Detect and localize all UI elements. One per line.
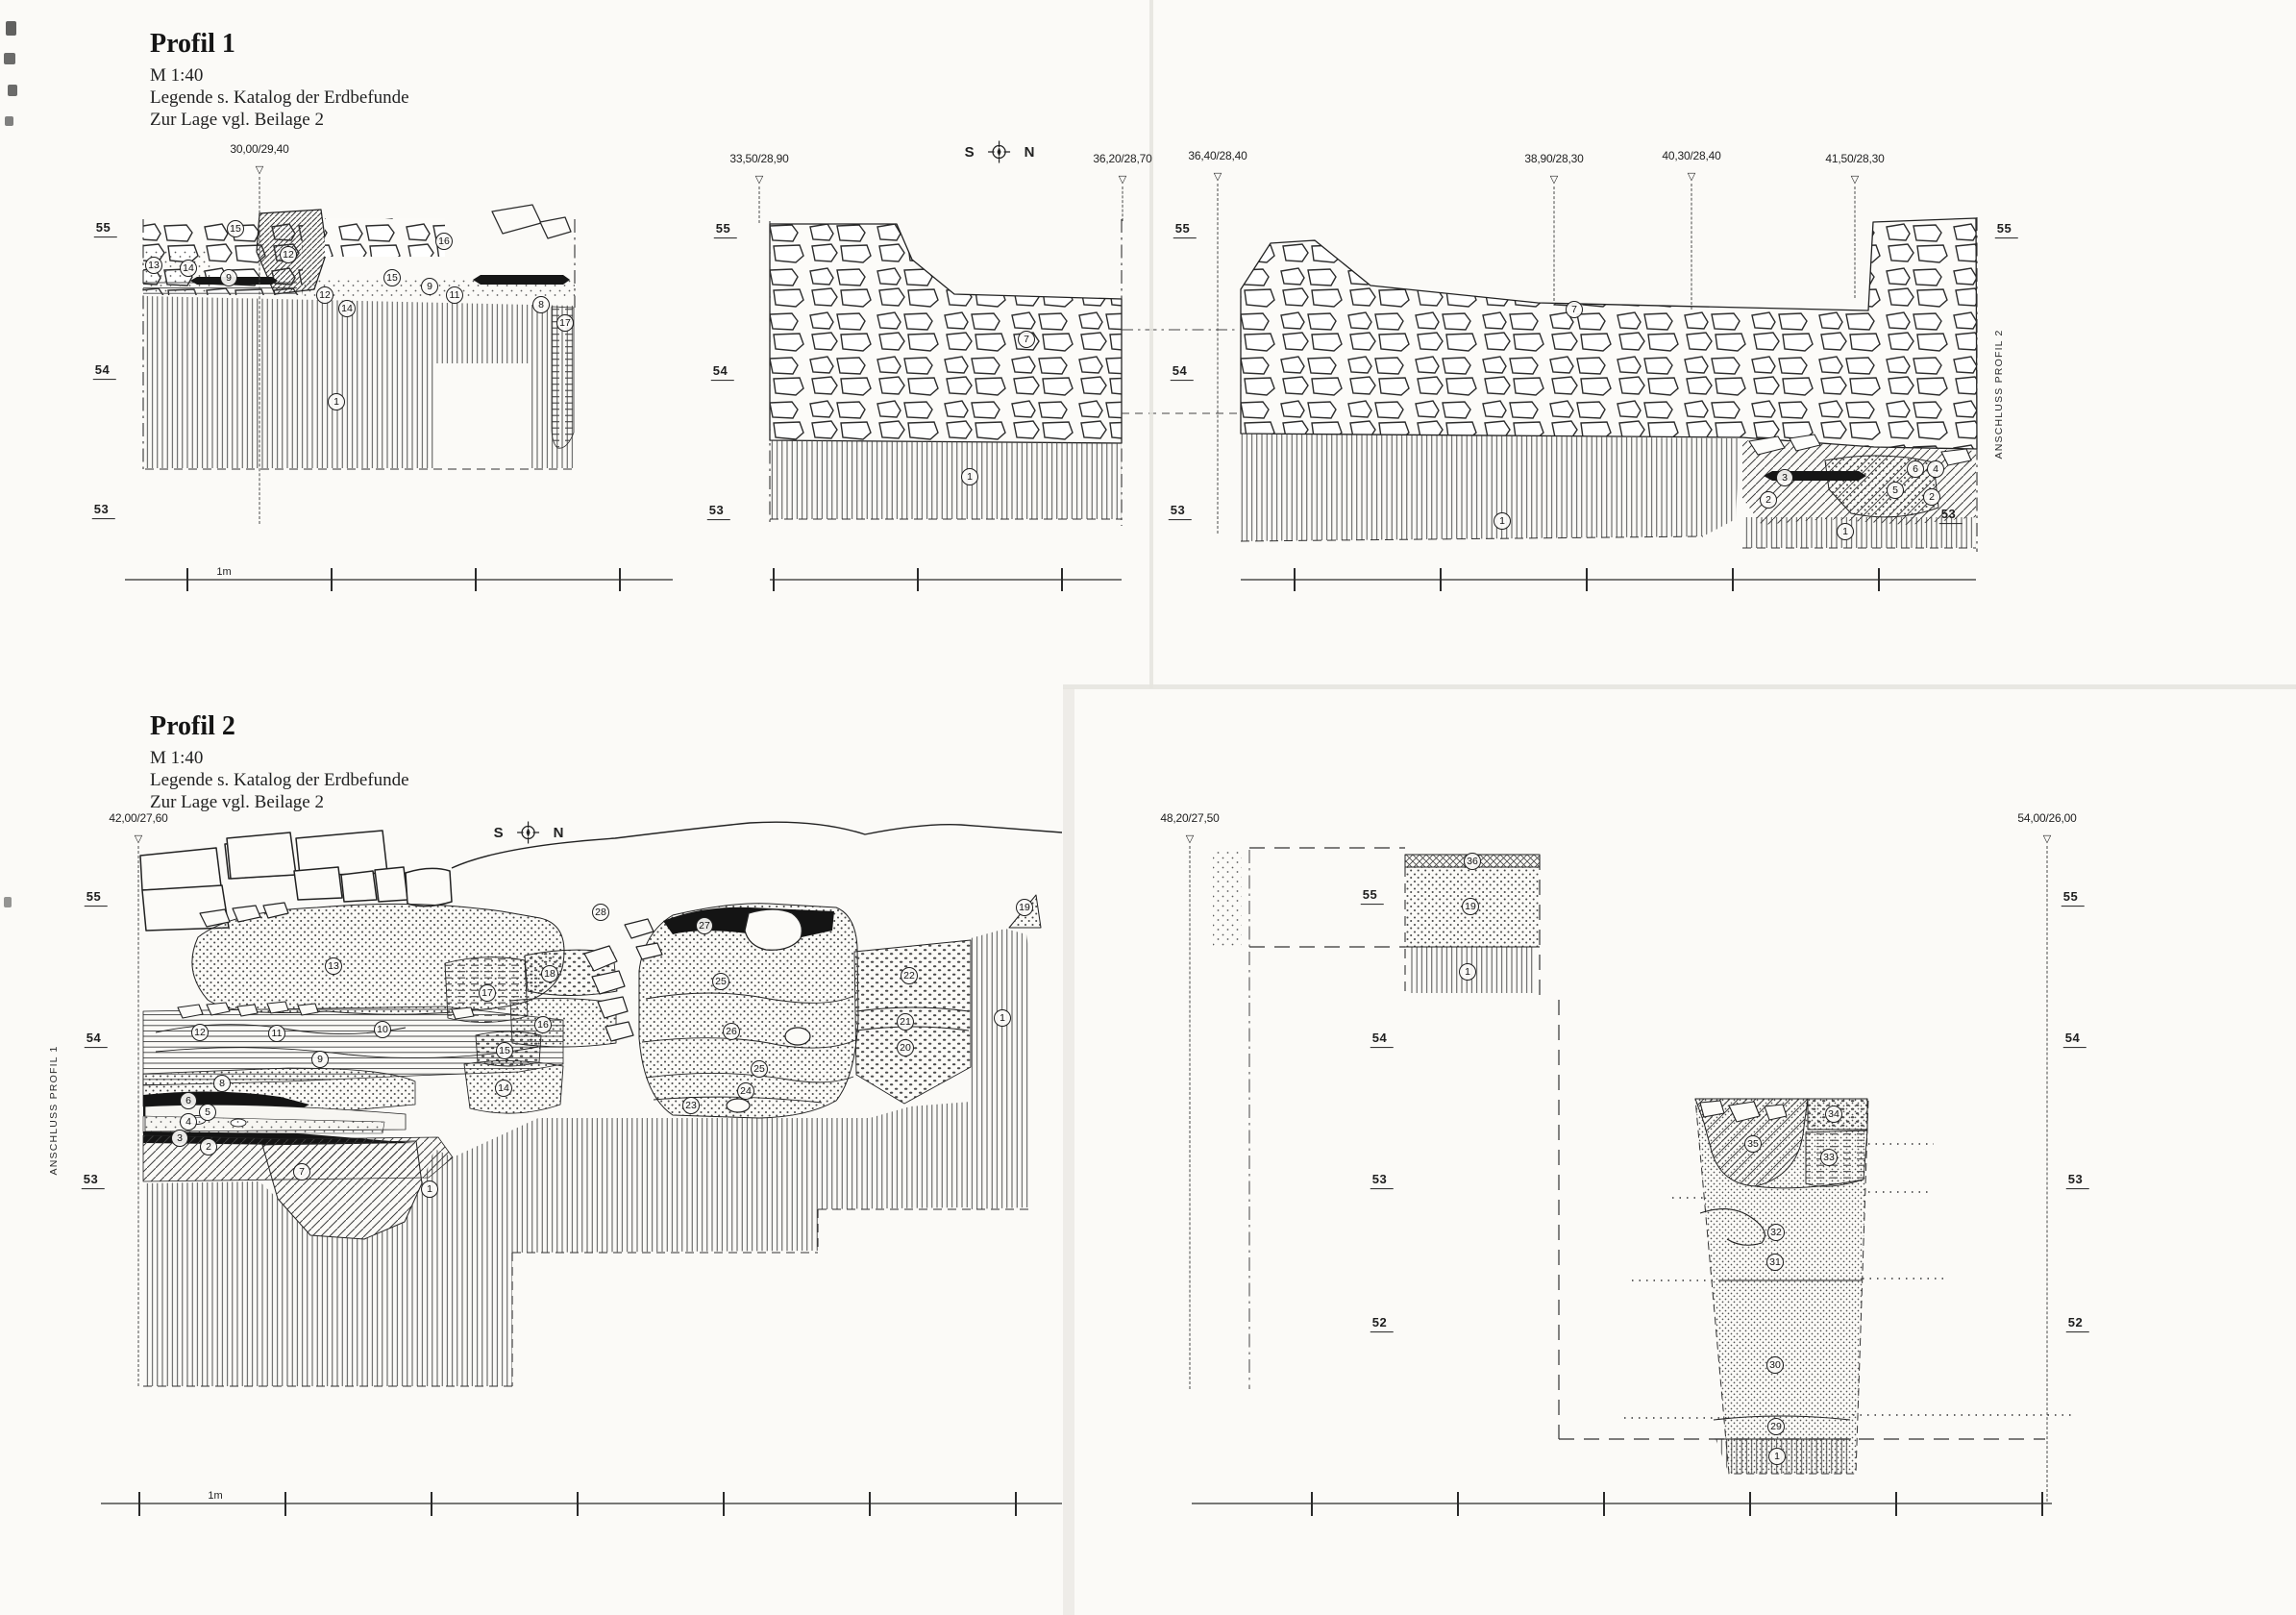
elevation-label: 53 [1939,507,1963,524]
profil2-right-drawing [1213,848,2076,1474]
layer-number-label: 11 [268,1025,285,1042]
compass-icon [516,820,541,845]
survey-coordinate-label: 54,00/26,00 [2017,811,2076,825]
anschluss-profil-2-note: ANSCHLUSS PROFIL 2 [1993,330,2005,460]
profil2-scale-bars [101,1492,2052,1516]
survey-plumb-line [1123,186,1123,221]
survey-plumb-line [138,846,139,1386]
layer-number-label: 19 [1462,898,1479,915]
survey-plumb-line [259,177,260,524]
survey-plumb-line [1855,186,1856,298]
layer-number-label: 1 [328,393,345,410]
survey-coordinate-label: 30,00/29,40 [230,142,288,156]
layer-number-label: 17 [556,314,574,332]
scalebar-1m-label: 1m [208,1490,222,1502]
layer-number-label: 2 [1760,491,1777,509]
compass-north-label: N [554,825,564,841]
survey-coordinate-label: 38,90/28,30 [1524,152,1583,165]
layer-number-label: 5 [1887,482,1904,499]
layer-number-label: 29 [1767,1418,1785,1435]
survey-triangle-icon: ▽ [135,832,142,845]
layer-number-label: 9 [421,278,438,295]
layer-number-label: 13 [325,957,342,975]
survey-plumb-line [1554,186,1555,306]
layer-number-label: 6 [1907,460,1924,478]
layer-number-label: 36 [1464,853,1481,870]
profil2-legend-line2: Zur Lage vgl. Beilage 2 [150,791,409,813]
layer-number-label: 21 [897,1013,914,1031]
profil2-drawing [101,822,2076,1516]
layer-number-label: 1 [994,1009,1011,1027]
layer-number-label: 16 [534,1016,552,1033]
layer-number-label: 12 [191,1024,209,1041]
survey-coordinate-label: 42,00/27,60 [109,811,167,825]
survey-plumb-line [759,186,760,223]
elevation-label: 54 [93,362,116,380]
layer-number-label: 14 [495,1080,512,1097]
survey-coordinate-label: 33,50/28,90 [729,152,788,165]
layer-number-label: 9 [220,269,237,286]
layer-number-label: 30 [1766,1356,1784,1374]
compass-south-label: S [494,825,504,841]
elevation-label: 53 [1370,1172,1394,1189]
layer-number-label: 1 [1459,963,1476,981]
compass-icon [987,139,1012,164]
elevation-label: 53 [2066,1172,2089,1189]
elevation-label: 55 [1995,221,2018,238]
profil1-legend-line2: Zur Lage vgl. Beilage 2 [150,109,409,131]
layer-number-label: 1 [1768,1448,1786,1465]
profil1-legend-line1: Legende s. Katalog der Erdbefunde [150,87,409,109]
elevation-label: 53 [707,503,730,520]
survey-plumb-line [1190,846,1191,1389]
layer-number-label: 19 [1016,899,1033,916]
survey-triangle-icon: ▽ [256,163,263,176]
survey-triangle-icon: ▽ [1214,170,1222,183]
elevation-label: 53 [92,502,115,519]
layer-number-label: 12 [280,246,297,263]
layer-number-label: 22 [901,967,918,984]
elevation-label: 54 [711,363,734,381]
elevation-label: 55 [94,220,117,237]
layer-number-label: 1 [1837,523,1854,540]
layer-number-label: 16 [435,233,453,250]
elevation-label: 55 [1173,221,1197,238]
layer-number-label: 17 [479,984,496,1002]
survey-plumb-line [1691,184,1692,310]
layer-number-label: 34 [1825,1106,1842,1123]
survey-coordinate-label: 48,20/27,50 [1160,811,1219,825]
layer-number-label: 32 [1767,1224,1785,1241]
layer-number-label: 11 [446,286,463,304]
layer-number-label: 13 [145,257,162,274]
elevation-label: 54 [2063,1031,2086,1048]
layer-number-label: 10 [374,1021,391,1038]
survey-coordinate-label: 36,20/28,70 [1093,152,1151,165]
layer-number-label: 9 [311,1051,329,1068]
layer-number-label: 3 [171,1130,188,1147]
layer-number-label: 7 [1018,331,1035,348]
profil1-scale-bars [125,568,1976,591]
survey-coordinate-label: 40,30/28,40 [1662,149,1720,162]
compass-north-label: N [1025,144,1035,161]
layer-number-label: 18 [541,965,558,982]
layer-number-label: 2 [200,1138,217,1155]
elevation-label: 55 [2061,889,2085,907]
profil1-scale: M 1:40 [150,64,409,87]
layer-number-label: 4 [180,1113,197,1130]
profil2-scale: M 1:40 [150,747,409,769]
layer-number-label: 7 [1566,301,1583,318]
layer-number-label: 25 [712,973,729,990]
layer-number-label: 20 [897,1039,914,1056]
layer-number-label: 15 [227,220,244,237]
survey-coordinate-label: 41,50/28,30 [1825,152,1884,165]
profil2-legend-line1: Legende s. Katalog der Erdbefunde [150,769,409,791]
survey-plumb-line [2047,846,2048,1502]
survey-triangle-icon: ▽ [755,173,763,186]
layer-number-label: 3 [1776,469,1793,486]
survey-coordinate-label: 36,40/28,40 [1188,149,1247,162]
layer-number-label: 25 [751,1060,768,1078]
survey-triangle-icon: ▽ [1119,173,1126,186]
layer-number-label: 1 [421,1180,438,1198]
layer-number-label: 4 [1927,460,1944,478]
layer-number-label: 14 [338,300,356,317]
layer-number-label: 12 [316,286,333,304]
profil2-title: Profil 2 [150,711,409,742]
layer-number-label: 33 [1820,1149,1838,1166]
survey-plumb-line [1218,184,1219,534]
elevation-label: 52 [1370,1315,1394,1332]
layer-number-label: 24 [737,1082,754,1100]
survey-triangle-icon: ▽ [1688,170,1695,183]
layer-number-label: 5 [199,1104,216,1121]
survey-triangle-icon: ▽ [1851,173,1859,186]
elevation-label: 53 [82,1172,105,1189]
layer-number-label: 15 [383,269,401,286]
anschluss-profil-1-note: ANSCHLUSS PROFIL 1 [48,1046,60,1176]
survey-triangle-icon: ▽ [1550,173,1558,186]
layer-number-label: 6 [180,1092,197,1109]
profil1-right-panel [1241,217,1977,552]
layer-number-label: 2 [1923,488,1940,506]
elevation-label: 53 [1169,503,1192,520]
layer-number-label: 35 [1744,1135,1762,1153]
profil1-drawing [125,205,1977,591]
profil1-title: Profil 1 [150,29,409,60]
layer-number-label: 23 [682,1097,700,1114]
layer-number-label: 27 [696,917,713,934]
profil1-compass: S N [965,139,1035,164]
profil2-title-block: Profil 2 M 1:40 Legende s. Katalog der E… [150,711,409,813]
elevation-label: 55 [714,221,737,238]
layer-number-label: 8 [532,296,550,313]
layer-number-label: 1 [1494,512,1511,530]
scalebar-1m-label: 1m [216,566,231,578]
layer-number-label: 26 [723,1023,740,1040]
elevation-label: 55 [1361,887,1384,905]
layer-number-label: 31 [1766,1254,1784,1271]
scanned-profile-sheet: Profil 1 M 1:40 Legende s. Katalog der E… [0,0,2296,1615]
elevation-label: 52 [2066,1315,2089,1332]
elevation-label: 55 [85,889,108,907]
profil2-compass: S N [494,820,564,845]
layer-number-label: 28 [592,904,609,921]
layer-number-label: 14 [180,260,197,277]
profil1-middle-panel [770,219,1239,526]
profil1-title-block: Profil 1 M 1:40 Legende s. Katalog der E… [150,29,409,131]
layer-number-label: 1 [961,468,978,485]
survey-triangle-icon: ▽ [2043,832,2051,845]
survey-triangle-icon: ▽ [1186,832,1194,845]
layer-number-label: 7 [293,1163,310,1180]
elevation-label: 54 [1171,363,1194,381]
layer-number-label: 8 [213,1075,231,1092]
profil1-left-panel [143,205,575,470]
elevation-label: 54 [85,1031,108,1048]
layer-number-label: 15 [496,1042,513,1059]
elevation-label: 54 [1370,1031,1394,1048]
compass-south-label: S [965,144,975,161]
